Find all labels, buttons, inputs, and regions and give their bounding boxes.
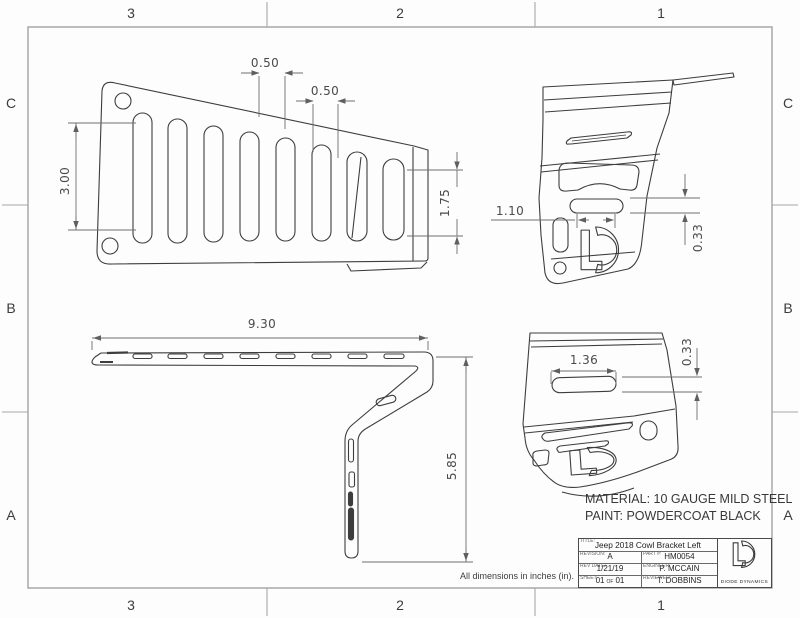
dim-front-slot-length: 3.00 <box>58 166 72 196</box>
sheet-of: OF <box>605 579 616 587</box>
iso-bottom-angled-slot-2 <box>557 441 609 453</box>
front-view <box>97 82 428 271</box>
dim-iso-top-slot-width: 1.10 <box>495 204 525 218</box>
revision-value: A <box>607 552 612 563</box>
reviewed-label: REVIEWED: <box>643 576 671 581</box>
iso-top-side-slot <box>553 218 568 252</box>
side-slot-marks <box>133 354 404 359</box>
zone-col-label: 2 <box>396 5 404 21</box>
logo-cutout <box>581 227 618 273</box>
iso-bottom-view <box>523 333 678 496</box>
iso-top-blade <box>673 73 734 85</box>
zone-row-label: C <box>783 95 793 111</box>
drawing-sheet: 3 2 1 3 2 1 C B A C B A 0.50 0.50 3.00 1… <box>0 0 800 618</box>
company-logo-cell: DIODE DYNAMICS <box>717 539 771 587</box>
revision-label: REVISION: <box>580 552 605 557</box>
part-number-label: PART #: <box>643 552 661 557</box>
border-frame <box>2 2 798 616</box>
zone-row-label: C <box>6 95 16 111</box>
sheet-cell: SHEET: 01 OF 01 <box>579 576 641 587</box>
rev-date-label: REV DATE: <box>580 564 606 569</box>
zone-row-label: A <box>783 507 792 523</box>
front-slots <box>133 113 404 243</box>
paint-note: PAINT: POWDERCOAT BLACK <box>585 509 761 523</box>
part-number-value: HM0054 <box>664 552 694 563</box>
logo-cutout-perspective <box>570 446 618 477</box>
side-edge-slots <box>349 439 355 540</box>
iso-bottom-corner-notch <box>640 421 657 440</box>
zone-col-label: 3 <box>127 597 135 613</box>
iso-bottom-angled-slot-1 <box>542 423 633 441</box>
drawing-linework <box>0 0 800 618</box>
dim-front-slot-spacing-2: 0.50 <box>310 84 340 98</box>
iso-bottom-small-cutout <box>533 450 549 466</box>
iso-bottom-dim-slot <box>552 376 616 393</box>
zone-col-label: 2 <box>396 597 404 613</box>
units-note: All dimensions in inches (in). <box>460 571 574 581</box>
dim-side-overall-height: 5.85 <box>445 451 459 481</box>
zone-col-label: 1 <box>657 5 665 21</box>
rev-date-cell: REV DATE: 1/21/19 <box>579 564 641 575</box>
engineer-cell: ENGINEER: P. MCCAIN <box>641 564 717 575</box>
dim-front-right-slot-length: 1.75 <box>438 188 452 218</box>
dim-front-slot-spacing-1: 0.50 <box>250 56 280 70</box>
mount-hole-top <box>115 93 131 109</box>
engineer-label: ENGINEER: <box>643 564 671 569</box>
iso-bottom-bend-lines <box>524 339 675 433</box>
side-outline <box>92 352 433 558</box>
iso-top-large-cutout <box>559 163 639 191</box>
sheet-total: 01 <box>615 576 624 587</box>
drawing-title: Jeep 2018 Cowl Bracket Left <box>595 540 701 551</box>
zone-row-label: A <box>6 507 15 523</box>
mount-hole-bottom <box>102 238 118 254</box>
revision-cell: REVISION: A <box>579 552 641 563</box>
zone-col-label: 3 <box>127 5 135 21</box>
dim-iso-top-slot-height: 0.33 <box>691 223 705 253</box>
company-name: DIODE DYNAMICS <box>721 580 768 585</box>
front-outline <box>97 82 428 264</box>
dim-side-overall-width: 9.30 <box>247 317 277 331</box>
title-block: TITLE: Jeep 2018 Cowl Bracket Left REVIS… <box>578 538 772 588</box>
iso-top-dim-slot <box>570 199 623 213</box>
zone-row-label: B <box>783 300 792 316</box>
material-note: MATERIAL: 10 GAUGE MILD STEEL <box>585 492 792 506</box>
reviewed-cell: REVIEWED: T. DOBBINS <box>641 576 717 587</box>
side-angled-slot <box>375 395 396 407</box>
side-view <box>92 352 433 558</box>
dim-iso-bottom-slot-height: 0.33 <box>680 337 694 367</box>
front-bottom-tab <box>347 262 427 271</box>
title-label: TITLE: <box>580 539 595 544</box>
zone-col-label: 1 <box>657 597 665 613</box>
iso-top-hole <box>554 262 566 274</box>
dim-iso-bottom-slot-width: 1.36 <box>569 353 599 367</box>
title-cell: TITLE: Jeep 2018 Cowl Bracket Left <box>579 539 717 551</box>
zone-row-label: B <box>6 300 15 316</box>
part-number-cell: PART #: HM0054 <box>641 552 717 563</box>
iso-top-bend-lines <box>540 92 672 259</box>
sheet-label: SHEET: <box>580 576 598 581</box>
